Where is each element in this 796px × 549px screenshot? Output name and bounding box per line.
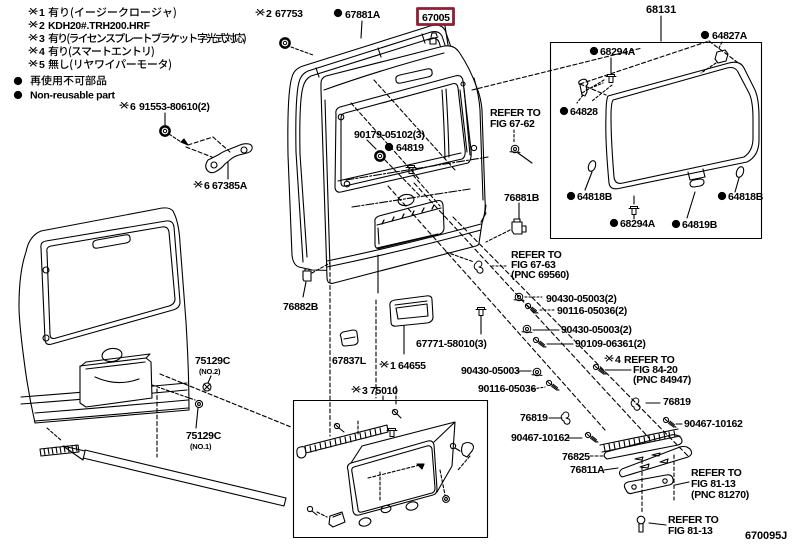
svg-text:64828: 64828	[570, 106, 598, 118]
svg-text:64819B: 64819B	[682, 219, 718, 231]
svg-text:67385A: 67385A	[212, 180, 248, 192]
svg-text:Non-reusable part: Non-reusable part	[30, 90, 116, 102]
svg-text:KDH20#.TRH200.HRF: KDH20#.TRH200.HRF	[48, 20, 151, 32]
svg-text:3: 3	[39, 33, 45, 45]
svg-text:76882B: 76882B	[283, 301, 319, 313]
svg-text:4: 4	[615, 354, 621, 366]
svg-text:FIG 67-62: FIG 67-62	[490, 118, 535, 130]
svg-text:76819: 76819	[663, 396, 691, 408]
svg-text:67005: 67005	[422, 12, 450, 24]
svg-text:91553-80610(2): 91553-80610(2)	[139, 101, 210, 113]
svg-text:(PNC 84947): (PNC 84947)	[633, 374, 691, 386]
svg-text:75129C: 75129C	[186, 430, 222, 442]
svg-text:6: 6	[130, 101, 136, 113]
svg-text:(NO.2): (NO.2)	[199, 367, 221, 376]
svg-text:4: 4	[39, 46, 45, 58]
svg-text:64818B: 64818B	[577, 191, 613, 203]
svg-text:90179-05102(3): 90179-05102(3)	[354, 129, 425, 141]
svg-text:68294A: 68294A	[620, 218, 656, 230]
svg-text:(NO.1): (NO.1)	[190, 442, 212, 451]
svg-text:90430-05003: 90430-05003	[461, 365, 520, 377]
svg-text:(PNC 69560): (PNC 69560)	[511, 269, 569, 281]
svg-text:64819: 64819	[396, 142, 424, 154]
svg-text:90430-05003(2): 90430-05003(2)	[546, 293, 617, 305]
svg-text:90116-05036(2): 90116-05036(2)	[557, 305, 627, 317]
svg-text:75129C: 75129C	[195, 355, 231, 367]
svg-text:76819: 76819	[520, 412, 548, 424]
svg-text:75010: 75010	[370, 385, 398, 397]
svg-text:68294A: 68294A	[600, 46, 636, 58]
svg-text:76881B: 76881B	[504, 192, 540, 204]
svg-text:67881A: 67881A	[345, 9, 381, 21]
svg-text:64818B: 64818B	[728, 191, 764, 203]
svg-text:64655: 64655	[398, 360, 426, 372]
svg-text:3: 3	[362, 385, 368, 397]
svg-text:67837L: 67837L	[332, 355, 367, 367]
svg-text:670095J: 670095J	[745, 530, 787, 542]
svg-text:2: 2	[266, 8, 272, 20]
svg-text:64827A: 64827A	[712, 30, 748, 42]
svg-text:FIG 81-13: FIG 81-13	[668, 525, 713, 537]
svg-text:90430-05003(2): 90430-05003(2)	[561, 324, 632, 336]
svg-text:67753: 67753	[275, 8, 303, 20]
svg-text:68131: 68131	[646, 4, 676, 16]
svg-text:2: 2	[39, 20, 45, 32]
svg-text:90109-06361(2): 90109-06361(2)	[575, 338, 646, 350]
svg-text:(PNC 81270): (PNC 81270)	[691, 489, 749, 501]
svg-text:67771-58010(3): 67771-58010(3)	[416, 338, 487, 350]
svg-text:6: 6	[204, 180, 210, 192]
svg-text:5: 5	[39, 59, 45, 71]
svg-text:76825: 76825	[562, 451, 590, 463]
svg-text:90467-10162: 90467-10162	[684, 418, 743, 430]
svg-text:1: 1	[390, 360, 396, 372]
svg-text:90467-10162: 90467-10162	[511, 432, 570, 444]
svg-text:76811A: 76811A	[570, 464, 605, 476]
svg-text:90116-05036: 90116-05036	[478, 383, 536, 395]
svg-text:1: 1	[39, 7, 45, 19]
